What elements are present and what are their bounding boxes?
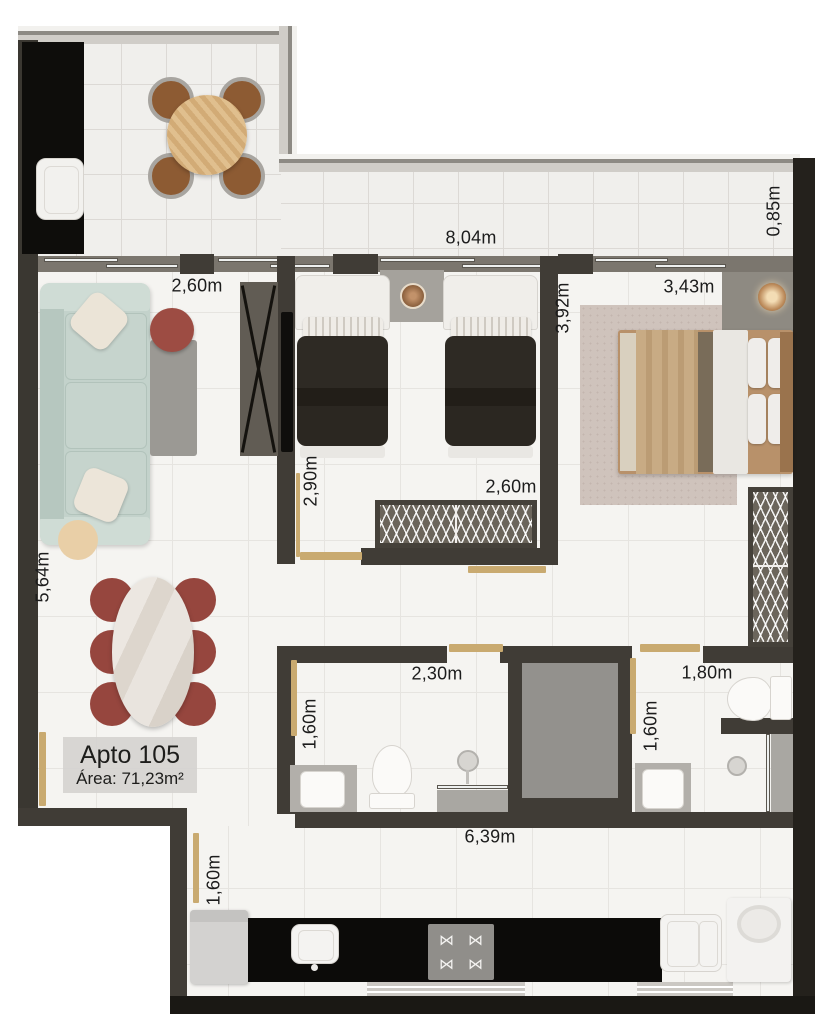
bath2-door-threshold xyxy=(640,644,700,652)
bedroom2-wardrobe-divider xyxy=(455,505,457,543)
wall-bathrooms-bottom xyxy=(295,812,793,828)
master-pillow-1 xyxy=(748,338,766,388)
tv-panel xyxy=(240,282,278,456)
bath1-sink xyxy=(300,771,345,808)
floor-plan: ⋈ ⋈ ⋈ ⋈ 8,04m0,85m2,60m3,92m3,43m2,90m2,… xyxy=(0,0,837,1024)
washing-machine xyxy=(727,898,791,982)
kitchen-window-2 xyxy=(637,982,733,996)
entry-door-jamb xyxy=(39,732,46,806)
bath2-toilet-tank xyxy=(770,676,792,720)
stove-burner-icon: ⋈ xyxy=(468,933,483,948)
bath2-shower-head xyxy=(727,756,747,776)
laundry-tub-basin-left xyxy=(667,921,699,967)
kitchen-faucet xyxy=(311,964,318,971)
wall-bottom xyxy=(170,996,815,1014)
balcony-strip-floor xyxy=(281,170,793,256)
dining-table xyxy=(112,577,194,727)
unit-number: Apto 105 xyxy=(80,742,180,769)
wall-right xyxy=(793,158,815,1014)
wall-bottom-left xyxy=(18,808,187,826)
balcony-parapet-right xyxy=(279,154,800,172)
unit-label-box: Apto 105 Área: 71,23m² xyxy=(63,737,197,793)
washing-machine-lid xyxy=(737,905,781,943)
bath1-shower-stem xyxy=(466,770,469,784)
bedroom2-wall-trim xyxy=(296,473,300,557)
sliding-glass-4a xyxy=(595,258,668,262)
kitchen-sink-basin xyxy=(298,930,334,961)
wall-bedroom2-bottom xyxy=(361,548,558,565)
master-bed xyxy=(618,330,793,474)
stove: ⋈ ⋈ ⋈ ⋈ xyxy=(428,924,494,980)
window-pier-1 xyxy=(180,254,214,274)
master-door-threshold xyxy=(468,566,546,573)
bath2-shower-glass xyxy=(766,734,770,812)
tv-screen xyxy=(281,312,293,452)
master-bed-sheet-left xyxy=(620,333,636,471)
balcony-counter xyxy=(22,42,84,254)
bath1-shower-glass xyxy=(437,785,508,789)
stove-burner-icon: ⋈ xyxy=(439,933,454,948)
wall-shaft-left xyxy=(508,646,522,814)
wall-kitchen-left xyxy=(170,812,187,1008)
fridge xyxy=(190,910,248,984)
window-pier-3 xyxy=(558,254,593,274)
bath1-shower-head xyxy=(457,750,479,772)
master-headboard xyxy=(780,332,793,472)
bedroom2-wardrobe xyxy=(375,500,537,548)
bath2-door-jamb xyxy=(630,658,636,734)
wall-bedroom2-master xyxy=(540,256,558,564)
sliding-glass-4b xyxy=(655,264,726,268)
wall-bath1-top xyxy=(295,646,447,663)
stove-burner-icon: ⋈ xyxy=(468,957,483,972)
balcony-parapet-step xyxy=(279,26,297,170)
bath1-door-jamb xyxy=(291,660,297,736)
lounge-ottoman xyxy=(150,340,197,456)
lounge-chair xyxy=(150,308,194,352)
side-table xyxy=(58,520,98,560)
sliding-glass-1a xyxy=(44,258,118,262)
twin-bed1-footboard xyxy=(300,446,385,458)
master-wardrobe-divider xyxy=(753,565,788,567)
master-pillow-3 xyxy=(748,394,766,444)
laundry-tub xyxy=(660,914,722,972)
window-pier-2 xyxy=(333,254,378,274)
balcony-sink-basin xyxy=(44,166,79,214)
sliding-glass-2a xyxy=(218,258,280,262)
sofa-backrest xyxy=(40,309,64,519)
bath2-shower-floor xyxy=(771,734,793,812)
master-bed-crease xyxy=(698,332,713,472)
wall-bath2-top xyxy=(703,646,793,663)
bath1-door-threshold xyxy=(449,644,503,652)
fridge-top xyxy=(190,910,248,922)
master-bed-throw xyxy=(636,330,698,474)
kitchen-passage-jamb xyxy=(193,833,199,903)
master-wardrobe xyxy=(748,487,793,647)
kitchen-sink xyxy=(291,924,339,964)
bedroom2-door-threshold xyxy=(300,552,362,560)
sliding-glass-1b xyxy=(106,264,178,268)
twin-bed2-duvet xyxy=(445,336,536,446)
outside-corner-mask xyxy=(0,826,170,1024)
twin-bed1-duvet xyxy=(297,336,388,446)
bath2-toilet-bowl xyxy=(727,677,773,721)
bath1-toilet-bowl xyxy=(372,745,412,797)
master-pendant-light xyxy=(758,283,786,311)
laundry-tub-basin-right xyxy=(699,921,718,967)
bath1-shower-floor xyxy=(437,790,508,812)
bath1-toilet-tank xyxy=(369,793,415,809)
kitchen-window-1 xyxy=(367,982,525,996)
unit-area: Área: 71,23m² xyxy=(76,769,184,788)
shaft xyxy=(522,663,618,800)
master-bed-duvet xyxy=(713,330,748,474)
bed2-nightstand-plant xyxy=(400,283,426,309)
sofa-cushion-2 xyxy=(65,382,147,449)
sliding-glass-3a xyxy=(380,258,475,262)
stove-burner-icon: ⋈ xyxy=(439,957,454,972)
balcony-round-table xyxy=(167,95,247,175)
bath2-sink xyxy=(642,769,684,809)
twin-bed2-footboard xyxy=(448,446,533,458)
